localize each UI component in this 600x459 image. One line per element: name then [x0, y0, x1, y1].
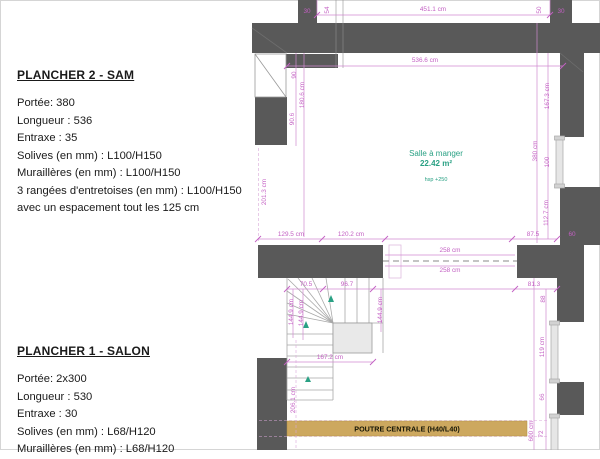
dim-lower-81-3: 81.3 [528, 281, 541, 288]
dim-total-600: 600 cm [528, 421, 535, 442]
spec-line: Longueur : 536 [17, 113, 265, 131]
window-lower [550, 321, 560, 383]
spec-line: Muraillères (en mm) : L100/H150 [17, 165, 265, 183]
spec-line: avec un espacement tout les 125 cm [17, 200, 265, 218]
dim-right-87-5: 87.5 [527, 231, 540, 238]
dim-chain-120-2: 120.2 cm [338, 231, 364, 238]
dim-opening-258-a: 258 cm [440, 247, 461, 254]
arrow-icon [305, 376, 311, 382]
dim-wall-60: 60 [568, 231, 576, 238]
dim-right-167-3: 167.3 cm [544, 83, 551, 109]
dim-window-119: 119 cm [539, 337, 546, 357]
stair-landing [333, 323, 372, 353]
window-bottom [550, 414, 560, 450]
central-beam: POUTRE CENTRALE (H40/L40) [259, 421, 548, 437]
dim-stair-144-9-a: 144.9 cm [288, 299, 295, 325]
dim-left-206-1: 206.1 cm [290, 387, 297, 413]
dim-right-100: 100 [544, 156, 551, 167]
dim-stair-96-7: 96.7 [341, 281, 354, 288]
dim-opening-258-b: 258 cm [440, 267, 461, 274]
spec-line: Entraxe : 30 [17, 406, 265, 424]
dimension-lines [258, 0, 563, 450]
dim-stair-144-9-c: 144.9 cm [377, 297, 384, 323]
dim-stub-right: 30 [557, 8, 565, 15]
dim-stair-70-5: 70.5 [300, 281, 313, 288]
spec-line: Portée: 2x300 [17, 371, 265, 389]
dim-top-left-jog: 54 [324, 6, 331, 14]
window-upper [555, 136, 565, 188]
plancher2-specs: Portée: 380 Longueur : 536 Entraxe : 35 … [17, 95, 265, 218]
spec-line: Entraxe : 35 [17, 130, 265, 148]
dim-stair-144-9-b: 144.9 cm [298, 300, 305, 326]
dim-left-180-6: 180.6 cm [299, 82, 306, 108]
wall-top-band [252, 23, 600, 53]
plancher1-title: PLANCHER 1 - SALON [17, 344, 265, 358]
dim-stub-left: 30 [303, 8, 311, 15]
plancher1-specs: Portée: 2x300 Longueur : 530 Entraxe : 3… [17, 371, 265, 459]
wall-right-lower-b [557, 382, 584, 415]
plancher1-panel: PLANCHER 1 - SALON Portée: 2x300 Longueu… [17, 344, 265, 459]
spec-line: Solives (en mm) : L100/H150 [17, 148, 265, 166]
dim-lower-66: 66 [539, 393, 546, 401]
spec-line: Longueur : 530 [17, 389, 265, 407]
dim-lower-72: 72 [538, 430, 545, 438]
dim-chain-129-5: 129.5 cm [278, 231, 304, 238]
dim-right-380: 380 cm [532, 141, 539, 162]
spec-line: 3 rangées d'entretoises (en mm) : L100/H… [17, 183, 265, 201]
room-ceiling-height: hsp +250 [425, 177, 448, 183]
dim-left-90: 90 [291, 71, 298, 79]
dim-right-112-7: 112.7 cm [543, 200, 550, 226]
dim-top-right-jog: 50 [536, 6, 543, 14]
plancher2-panel: PLANCHER 2 - SAM Portée: 380 Longueur : … [17, 68, 265, 218]
wall-right-mid [560, 187, 600, 245]
room-area: 22.42 m² [420, 159, 452, 168]
room-label: Salle à manger 22.42 m² hsp +250 [409, 149, 463, 183]
dim-lower-88: 88 [540, 295, 547, 303]
plancher2-title: PLANCHER 2 - SAM [17, 68, 265, 82]
wall-mid-right [517, 245, 584, 278]
staircase [287, 278, 383, 400]
dim-top-width: 451.1 cm [420, 6, 446, 13]
dimension-labels: 451.1 cm 30 30 54 50 536.6 cm 90 180.6 c… [261, 6, 576, 441]
wall-mid-left [258, 245, 383, 278]
beam-label: POUTRE CENTRALE (H40/L40) [354, 425, 460, 434]
wall-right-lower-a [557, 278, 584, 322]
spec-line: Solives (en mm) : L68/H120 [17, 424, 265, 442]
stair-direction-arrows [303, 295, 334, 382]
dim-stair-167-2: 167.2 cm [317, 354, 343, 361]
dim-left-90-6: 90.6 [289, 112, 296, 125]
spec-line: Portée: 380 [17, 95, 265, 113]
room-name: Salle à manger [409, 149, 463, 158]
dim-room-width: 536.6 cm [412, 57, 438, 64]
